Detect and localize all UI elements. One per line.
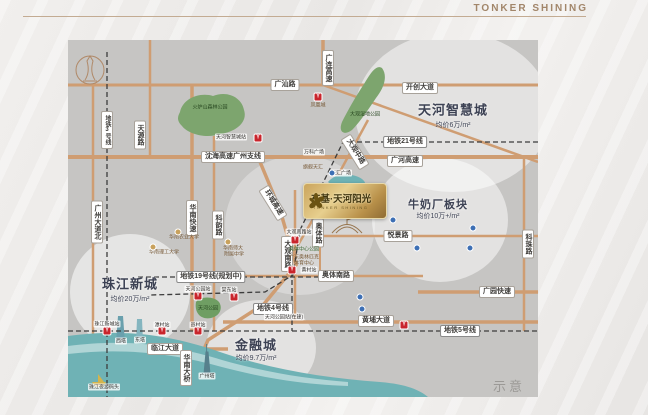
metro-station-icon: Y: [254, 134, 263, 143]
district-price: 均价10万+/m²: [417, 211, 460, 221]
road-label: 悦景路: [384, 230, 413, 242]
location-map: 广汕路开创大道沈海高速广州支线广河高速悦景路奥体南路广园快速黄埔大道临江大道广连…: [68, 40, 538, 397]
school-dot: [150, 244, 157, 251]
station-label: 大观南路站: [285, 229, 312, 236]
park-label: 大观湿地公园: [350, 111, 380, 118]
poi-dot: [470, 225, 477, 232]
poi-label: 华南农业大学: [169, 234, 199, 241]
district-label: 天河智慧城: [418, 100, 488, 119]
road-label: 地铁19号线(规划中): [176, 271, 245, 283]
road-label: 华南大桥: [180, 350, 192, 386]
header-rule: [23, 16, 586, 17]
road-label: 奥体南路: [318, 270, 354, 282]
poi-label: 东塔: [134, 337, 146, 344]
poi-label: 珠江夜游码头: [88, 384, 120, 391]
road-label: 地铁21号线: [383, 136, 427, 148]
road-label: 奥体路: [312, 219, 324, 248]
poi-label: 旗舰天汇: [303, 164, 323, 171]
metro-station-icon: Y: [288, 266, 297, 275]
road-label: 天源路: [134, 121, 146, 150]
poi-dot: [357, 294, 364, 301]
road-label: 地铁5号线: [440, 325, 480, 337]
road-label: 科珠路: [522, 230, 534, 259]
poi-label: 附属中学: [224, 251, 244, 258]
poi-label: 体育中心: [294, 260, 314, 267]
road-label: 临江大道: [147, 343, 183, 355]
park-label: 天河公园: [198, 305, 218, 312]
page-background: TONKER SHINING 广汕路开创大道沈海高速广州支线广河高速悦景路奥体南…: [0, 0, 648, 415]
road-label: 广河高速: [387, 155, 423, 167]
district-label: 珠江新城: [102, 274, 158, 293]
park-label: 火炉山森林公园: [192, 104, 227, 111]
poi-dot: [390, 217, 397, 224]
station-label: 天河智慧城站: [215, 134, 247, 141]
poi-label: 广州塔: [198, 373, 215, 380]
metro-station-icon: Y: [314, 93, 323, 102]
poi-label: 西塔: [115, 338, 127, 345]
metro-station-icon: Y: [194, 292, 203, 301]
metro-station-icon: Y: [158, 327, 167, 336]
district-price: 均价20万/m²: [111, 294, 150, 304]
school-dot: [225, 239, 232, 246]
road-label: 地铁3号线: [101, 111, 113, 149]
metro-station-icon: Y: [230, 293, 239, 302]
poi-dot: [359, 306, 366, 313]
metro-station-icon: Y: [400, 321, 409, 330]
metro-station-icon: Y: [291, 236, 300, 245]
district-label: 金融城: [235, 335, 277, 354]
poi-label: 天河公园站(在建): [264, 314, 304, 321]
district-label: 牛奶厂板块: [408, 196, 468, 212]
poi-dot: [467, 245, 474, 252]
district-price: 均价6万/m²: [436, 120, 471, 130]
road-label: 广园快速: [479, 286, 515, 298]
metro-station-icon: Y: [194, 327, 203, 336]
poi-label: 凤凰城: [310, 102, 325, 109]
road-label: 沈海高速广州支线: [201, 151, 265, 163]
road-label: 开创大道: [402, 82, 438, 94]
district-price: 均价9.7万/m²: [236, 353, 277, 363]
road-label: 环城高速: [258, 185, 287, 222]
road-label: 广连高速: [322, 50, 334, 86]
watermark: 示意图: [493, 376, 538, 397]
map-labels-layer: 广汕路开创大道沈海高速广州支线广河高速悦景路奥体南路广园快速黄埔大道临江大道广连…: [68, 40, 538, 397]
station-label: 黄村站: [300, 267, 317, 274]
road-label: 科韵路: [212, 211, 224, 240]
brand-logo: TONKER SHINING: [474, 3, 589, 14]
road-label: 黄埔大道: [358, 315, 394, 327]
poi-dot: [329, 170, 336, 177]
road-label: 广汕路: [271, 79, 300, 91]
road-label: 华南快速: [186, 200, 198, 236]
project-card: 东基·天河阳光 TONKER SHINING: [303, 183, 387, 219]
poi-label: 奥体中心公园: [289, 246, 319, 253]
road-label: 大观中路: [340, 134, 369, 171]
poi-label: 万科广场: [303, 149, 325, 156]
poi-dot: [414, 245, 421, 252]
metro-station-icon: Y: [103, 327, 112, 336]
school-dot: [175, 229, 182, 236]
project-logo-icon: [304, 189, 326, 213]
road-label: 广州大道北: [91, 201, 103, 244]
